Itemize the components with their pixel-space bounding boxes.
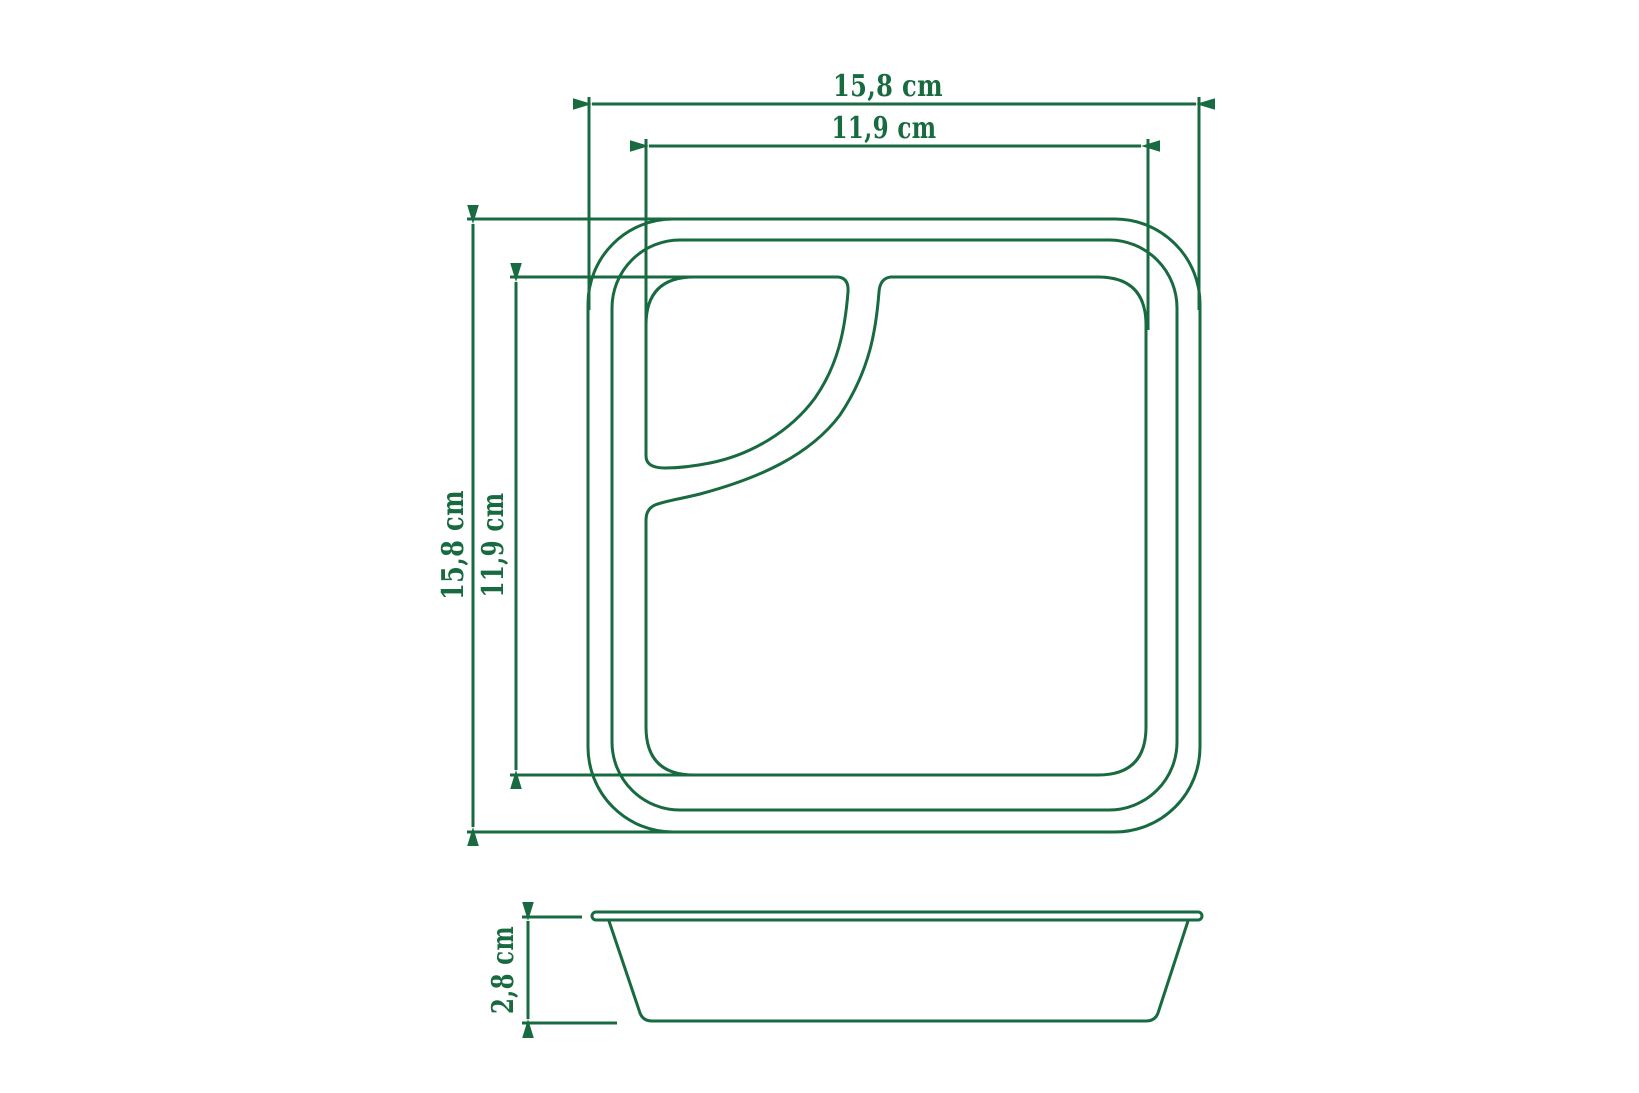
tray-rim-inner-outline bbox=[612, 240, 1177, 810]
main-compartment-outline bbox=[646, 277, 1146, 775]
dimension-diagram: 15,8 cm 11,9 cm 15,8 cm 11,9 bbox=[0, 0, 1639, 1093]
side-height-label: 2,8 cm bbox=[486, 926, 521, 1014]
side-view: 2,8 cm bbox=[486, 912, 1202, 1023]
dim-side-height: 2,8 cm bbox=[486, 917, 617, 1023]
side-view-rim-outline bbox=[592, 912, 1202, 920]
dim-inner-width: 11,9 cm bbox=[646, 111, 1148, 340]
side-view-body-outline bbox=[609, 921, 1188, 1021]
outer-width-label: 15,8 cm bbox=[833, 69, 943, 104]
inner-height-label: 11,9 cm bbox=[476, 493, 511, 598]
outer-height-label: 15,8 cm bbox=[436, 490, 471, 600]
top-view: 15,8 cm 11,9 cm 15,8 cm 11,9 bbox=[436, 69, 1200, 832]
dim-outer-width: 15,8 cm bbox=[589, 69, 1199, 310]
tray-dimension-drawing: 15,8 cm 11,9 cm 15,8 cm 11,9 bbox=[0, 0, 1639, 1093]
inner-width-label: 11,9 cm bbox=[832, 111, 937, 146]
tray-outer-edge-outline bbox=[588, 219, 1200, 832]
